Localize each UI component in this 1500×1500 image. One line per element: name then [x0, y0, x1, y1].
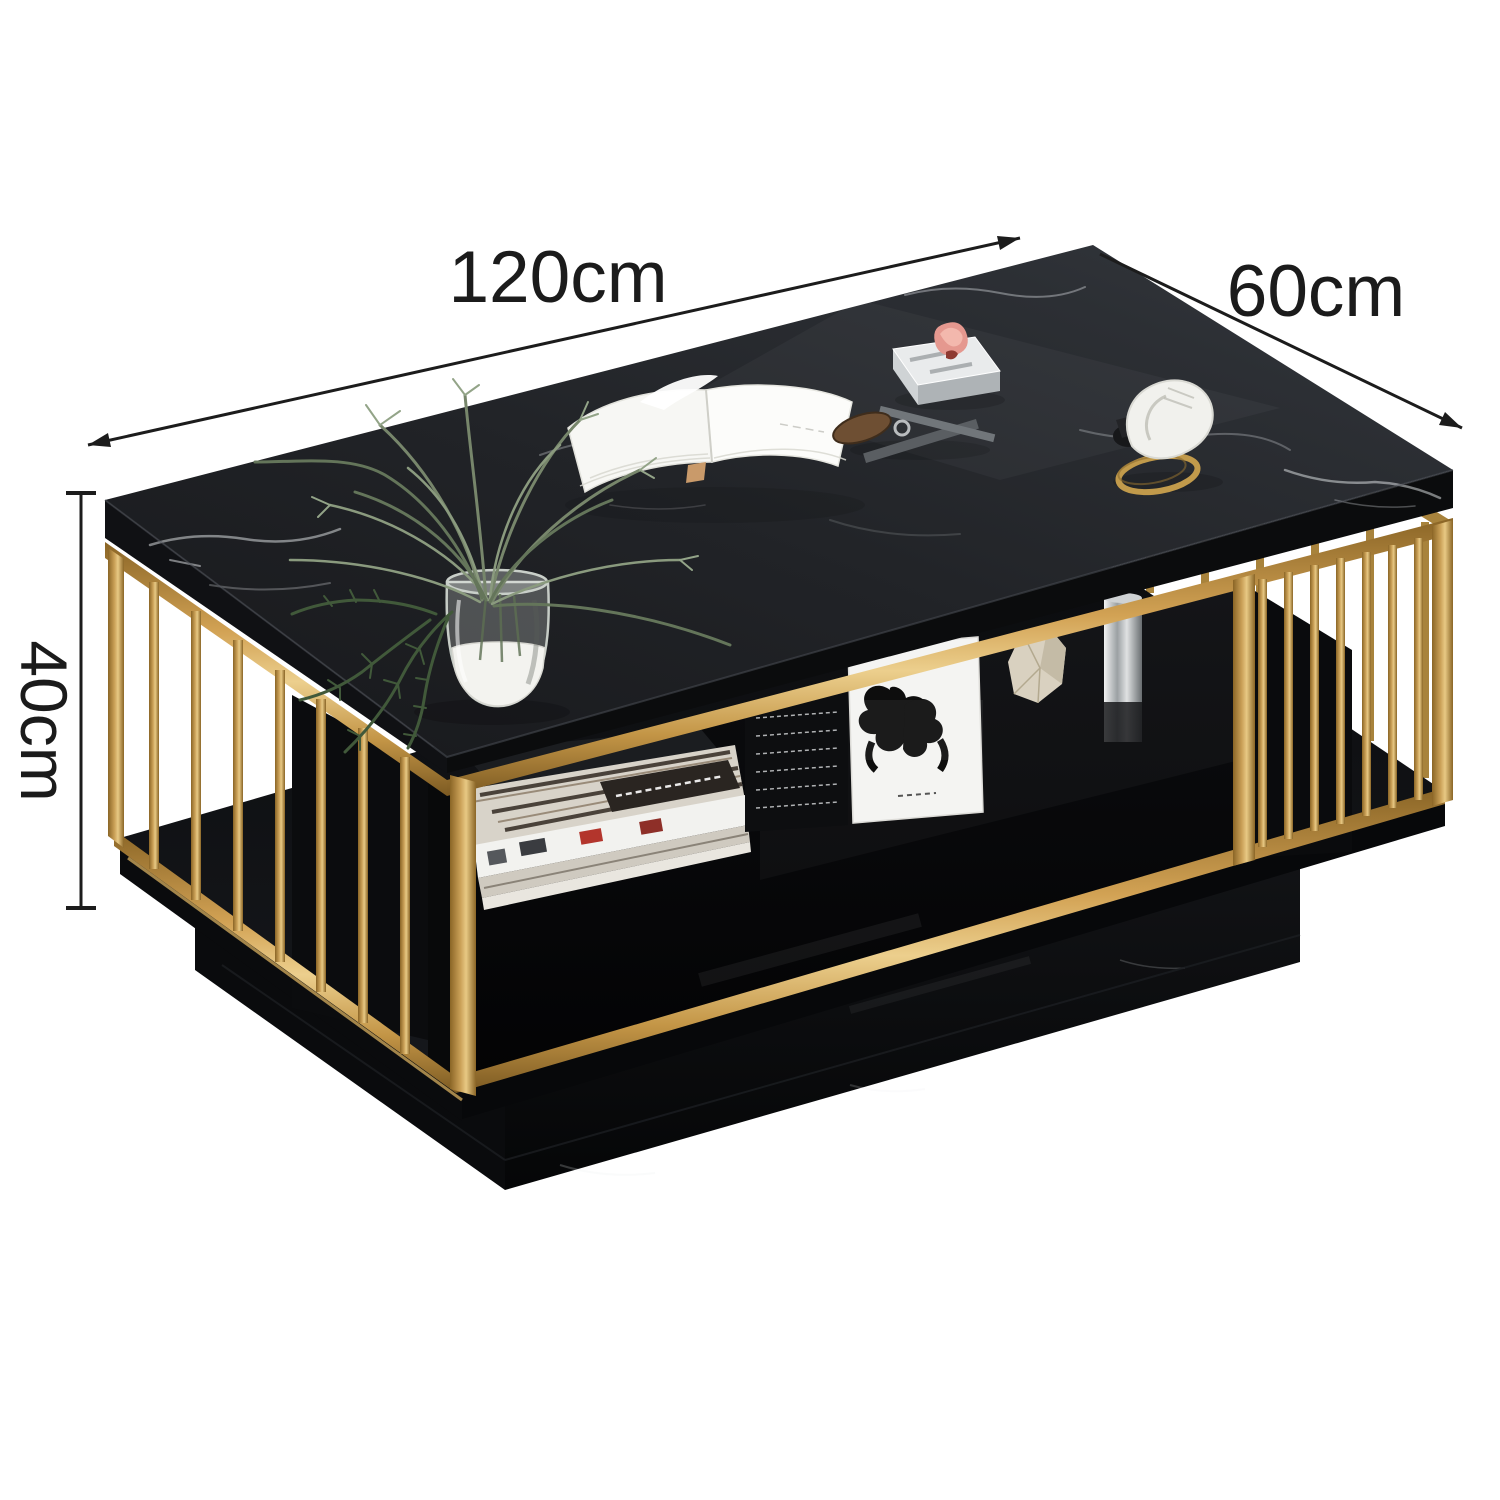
division-post: [1233, 574, 1255, 866]
height-dimension: 40cm: [7, 491, 96, 910]
height-dimension-label: 40cm: [7, 640, 81, 801]
cap-top: [66, 491, 96, 495]
bookmark: [686, 462, 706, 483]
arrowhead-left: [88, 433, 111, 447]
front-corner-post: [450, 775, 476, 1096]
depth-dimension-label: 60cm: [1227, 251, 1406, 332]
arrowhead-end: [1439, 412, 1462, 428]
book-shadow: [565, 487, 865, 523]
cap-bottom: [66, 906, 96, 910]
length-dimension-label: 120cm: [448, 237, 667, 318]
arrowhead-right: [997, 236, 1020, 250]
product-dimension-image: 120cm 60cm 40cm: [0, 0, 1500, 1500]
left-corner-post: [108, 548, 124, 848]
right-corner-post: [1432, 520, 1453, 806]
coffee-table-illustration: 120cm 60cm 40cm: [0, 0, 1500, 1500]
